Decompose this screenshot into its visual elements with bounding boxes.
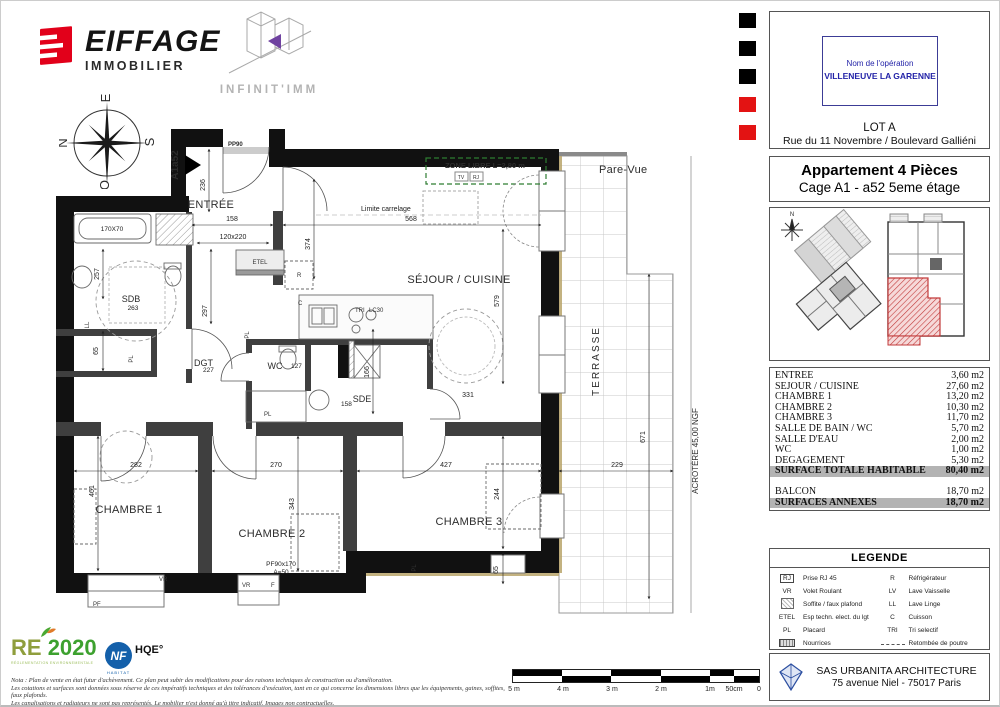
svg-text:579: 579 <box>494 295 501 307</box>
floor-plan-sheet: EIFFAGE IMMOBILIER INFINIT'IMM <box>0 0 1000 707</box>
eiffage-logo: EIFFAGE IMMOBILIER <box>39 25 220 73</box>
zone-libre: ZONE LIBRE L=2,80 m TV RJ <box>423 158 546 224</box>
room-ch1: CHAMBRE 1 <box>96 504 163 516</box>
legend-title: LEGENDE <box>770 549 989 568</box>
scale-label: 5 m <box>508 686 520 693</box>
svg-text:65: 65 <box>93 347 100 355</box>
svg-text:VR: VR <box>159 577 168 583</box>
operation-info-box: Nom de l'opération VILLENEUVE LA GARENNE… <box>769 11 990 149</box>
svg-text:282: 282 <box>130 462 142 469</box>
scale-label: 4 m <box>557 686 569 693</box>
svg-text:C: C <box>298 301 303 307</box>
highlighted-balcony <box>888 336 920 345</box>
legend-right-column: RRéfrigérateur LVLave Vaisselle LLLave L… <box>880 573 986 651</box>
svg-text:PL: PL <box>264 412 272 418</box>
registration-marks <box>739 13 756 153</box>
svg-text:671: 671 <box>640 431 647 443</box>
mark-black <box>739 41 756 56</box>
shower-sdb <box>156 214 193 245</box>
infinitimm-wordmark: INFINIT'IMM <box>214 84 324 96</box>
svg-text:236: 236 <box>200 179 207 191</box>
leaf-icon <box>37 625 57 639</box>
infinitimm-cube-icon <box>219 7 319 79</box>
site-plan-drawing: N <box>770 208 989 360</box>
soffite-icon <box>781 598 794 609</box>
apartment-title: Appartement 4 Pièces <box>770 162 989 179</box>
operation-label: Nom de l'opération <box>823 59 937 68</box>
svg-text:158: 158 <box>341 401 352 408</box>
closet-wc <box>246 391 306 422</box>
mini-compass: N <box>781 212 803 241</box>
terrasse-label: TERRASSE <box>591 326 602 396</box>
nf-badge: NF <box>105 642 132 669</box>
re2020-logo: RE 2020 RÉGLEMENTATION ENVIRONNEMENTALE <box>11 635 97 665</box>
room-wc: WC <box>268 361 283 371</box>
site-plan-box: N <box>769 207 990 361</box>
legend-item: Soffite / faux plafond <box>774 599 880 610</box>
room-labels: ENTRÉE SÉJOUR / CUISINE SDB 263 WC 127 S… <box>96 198 511 540</box>
operation-name: VILLENEUVE LA GARENNE <box>823 71 937 81</box>
svg-text:TRI: TRI <box>355 308 365 314</box>
svg-text:PL: PL <box>412 564 418 572</box>
address-label: Rue du 11 Novembre / Boulevard Galliéni <box>770 135 989 147</box>
apartment-subtitle: Cage A1 - a52 5eme étage <box>770 180 989 195</box>
scale-bar: 5 m 4 m 3 m 2 m 1m 50cm 0 <box>512 669 760 693</box>
terrace: Pare-Vue TERRASSE ACROTÈRE 45,00 NGF <box>346 154 700 613</box>
apartment-title-box: Appartement 4 Pièces Cage A1 - a52 5eme … <box>769 156 990 202</box>
notes-block: Nota : Plan de vente en état futur d'ach… <box>11 677 516 707</box>
svg-text:LL: LL <box>85 321 91 328</box>
svg-text:PL: PL <box>245 331 251 339</box>
table-row: SALLE DE BAIN / WC5,70 m2 <box>770 424 989 435</box>
legend-item: Nourrices <box>774 638 880 649</box>
legend-item: LLLave Linge <box>880 599 986 610</box>
mark-black <box>739 69 756 84</box>
compass-e: E <box>98 93 113 102</box>
table-annexes-row: SURFACES ANNEXES18,70 m2 <box>770 498 989 509</box>
scale-label: 2 m <box>655 686 667 693</box>
svg-text:427: 427 <box>440 462 452 469</box>
legend-item: VRVolet Roulant <box>774 586 880 597</box>
svg-text:166: 166 <box>364 366 371 378</box>
limite-carrelage-label: Limite carrelage <box>361 206 411 213</box>
svg-text:VR: VR <box>242 583 251 589</box>
room-ch2: CHAMBRE 2 <box>239 528 306 540</box>
legend-item: PLPlacard <box>774 625 880 636</box>
eiffage-wordmark: EIFFAGE <box>85 25 220 59</box>
mark-red <box>739 125 756 140</box>
surface-table: ENTREE3,60 m2 SEJOUR / CUISINE27,60 m2 C… <box>769 367 990 511</box>
scale-label: 0 <box>757 686 761 693</box>
room-sde: SDE <box>353 394 372 404</box>
svg-text:F: F <box>271 583 275 589</box>
legend-item: TRITri selectif <box>880 625 986 636</box>
note-line: Les cotations et surfaces sont données s… <box>11 685 516 700</box>
table-row: ENTREE3,60 m2 <box>770 371 989 382</box>
eiffage-immobilier-label: IMMOBILIER <box>85 59 220 73</box>
washbasin-sde <box>309 390 329 410</box>
mark-red <box>739 97 756 112</box>
room-ch3: CHAMBRE 3 <box>436 516 503 528</box>
room-entree: ENTRÉE <box>188 198 234 211</box>
svg-text:461: 461 <box>89 485 96 497</box>
svg-text:331: 331 <box>462 392 474 399</box>
legend-item: ETELEsp techn. elect. du lgt <box>774 612 880 623</box>
mark-black <box>739 13 756 28</box>
svg-text:A=50: A=50 <box>273 569 289 576</box>
table-total-row: SURFACE TOTALE HABITABLE80,40 m2 <box>770 466 989 477</box>
habitat-label: HABITAT <box>105 670 132 675</box>
nourrices-duct <box>349 341 354 378</box>
poutre-dash-icon <box>881 644 905 645</box>
svg-text:120x220: 120x220 <box>220 234 247 241</box>
svg-text:297: 297 <box>202 305 209 317</box>
svg-text:257: 257 <box>94 268 101 280</box>
room-sdb: SDB <box>122 294 141 304</box>
scale-label: 50cm <box>725 686 742 693</box>
tv-outlet-label: TV <box>458 175 465 181</box>
svg-text:374: 374 <box>305 238 312 250</box>
dining-table <box>429 309 503 383</box>
svg-text:170X70: 170X70 <box>101 226 124 233</box>
unit-label: A1a52 <box>170 150 181 180</box>
site-building-right <box>888 214 964 345</box>
operation-name-frame: Nom de l'opération VILLENEUVE LA GARENNE <box>822 36 938 106</box>
nourrices-icon <box>779 639 795 647</box>
pare-vue-label: Pare-Vue <box>599 164 647 176</box>
legend-item: RJPrise RJ 45 <box>774 573 880 584</box>
svg-text:158: 158 <box>226 216 238 223</box>
svg-text:65: 65 <box>493 566 500 574</box>
washbasin-sdb <box>72 266 92 288</box>
svg-text:N: N <box>790 212 794 218</box>
infinitimm-logo: INFINIT'IMM <box>214 7 324 96</box>
svg-text:PL: PL <box>129 355 135 363</box>
acrotere-label: ACROTÈRE 45,00 NGF <box>691 408 700 494</box>
svg-text:PF90x170: PF90x170 <box>266 561 296 568</box>
svg-text:270: 270 <box>270 462 282 469</box>
zone-libre-label: ZONE LIBRE L=2,80 m <box>445 161 525 170</box>
architect-logo-icon <box>778 662 804 692</box>
legend-box: LEGENDE RJPrise RJ 45 VRVolet Roulant So… <box>769 548 990 650</box>
room-sejour: SÉJOUR / CUISINE <box>407 273 510 286</box>
svg-text:127: 127 <box>291 363 302 370</box>
legend-item: CCuisson <box>880 612 986 623</box>
svg-text:244: 244 <box>494 488 501 500</box>
architect-box: SAS URBANITA ARCHITECTURE 75 avenue Niel… <box>769 653 990 701</box>
legend-item: LVLave Vaisselle <box>880 586 986 597</box>
architect-address: 75 avenue Niel - 75017 Paris <box>804 678 989 689</box>
hqe-label: HQE° <box>135 644 163 656</box>
svg-text:229: 229 <box>611 462 623 469</box>
legend-item: RRéfrigérateur <box>880 573 986 584</box>
svg-text:LC30: LC30 <box>369 308 384 314</box>
lot-label: LOT A <box>770 122 989 134</box>
svg-text:PF: PF <box>93 602 101 608</box>
architect-name: SAS URBANITA ARCHITECTURE <box>804 665 989 677</box>
legend-item: Retombée de poutre <box>880 638 986 649</box>
note-line: Les canalisations et radiateurs ne sont … <box>11 700 516 707</box>
rj-outlet-label: RJ <box>473 175 480 181</box>
floor-plan-drawing: Pare-Vue TERRASSE ACROTÈRE 45,00 NGF <box>51 119 706 624</box>
svg-text:343: 343 <box>289 498 296 510</box>
nf-hqe-logo: NF HABITAT HQE° <box>105 642 163 675</box>
scale-label: 3 m <box>606 686 618 693</box>
svg-text:263: 263 <box>128 305 139 312</box>
eiffage-icon <box>39 25 75 69</box>
re-subtitle: RÉGLEMENTATION ENVIRONNEMENTALE <box>11 661 97 665</box>
scale-label: 1m <box>705 686 715 693</box>
table-row: BALCON18,70 m2 <box>770 487 989 498</box>
legend-left-column: RJPrise RJ 45 VRVolet Roulant Soffite / … <box>774 573 880 651</box>
svg-text:227: 227 <box>203 367 214 374</box>
svg-text:ETEL: ETEL <box>252 260 268 266</box>
svg-text:568: 568 <box>405 216 417 223</box>
svg-text:R: R <box>297 273 302 279</box>
furniture-ch1 <box>100 431 152 483</box>
note-line: Nota : Plan de vente en état futur d'ach… <box>11 677 516 685</box>
